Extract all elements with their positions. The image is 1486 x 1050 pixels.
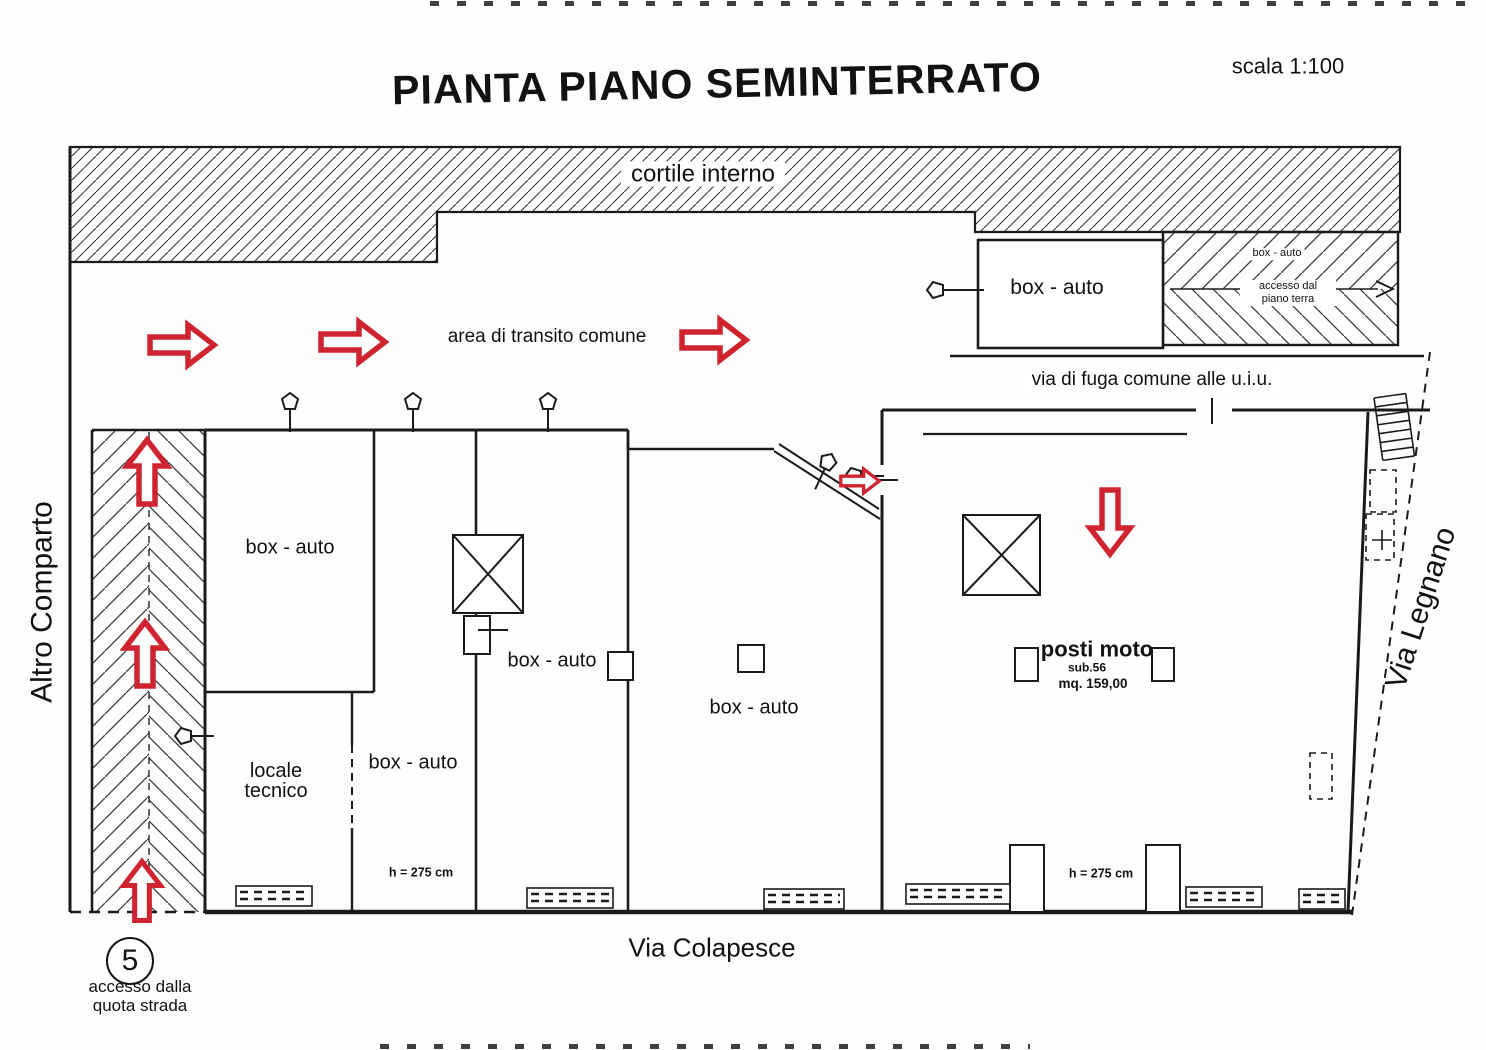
plan-linework: [0, 0, 1486, 1050]
transit-area-label: area di transito comune: [448, 327, 647, 347]
pilaster-pm-left: [1010, 845, 1044, 912]
stairs: [1366, 394, 1414, 560]
posti-moto-area-label: mq. 159,00: [1058, 677, 1127, 691]
street-label-altro-comparto: Altro Comparto: [26, 501, 58, 703]
door-symbols: [175, 282, 966, 744]
cortile-interno-label: cortile interno: [621, 161, 785, 186]
posti-moto-sub-label: sub.56: [1068, 662, 1106, 675]
access-note-line1: accesso dalla: [88, 977, 191, 996]
door-symbol-icon: [282, 393, 298, 432]
pillar-x-right: [963, 515, 1040, 595]
ramp-box-auto-label: box - auto: [1250, 248, 1305, 260]
locale-line1: locale: [250, 760, 302, 782]
ramp-access-label: accesso dal piano terra: [1240, 280, 1336, 306]
access-number: 5: [122, 944, 139, 978]
room-label-box-auto-2: box - auto: [369, 753, 458, 774]
pillar-small-pm-left: [1015, 648, 1038, 681]
pillar-wall-room3: [608, 652, 633, 680]
arrow-right-icon: [150, 325, 214, 365]
room-label-box-auto-1: box - auto: [246, 538, 335, 559]
scan-noise-bottom: [380, 1044, 1030, 1049]
door-symbol-icon: [405, 393, 421, 432]
scale-label: scala 1:100: [1232, 54, 1345, 77]
door-symbol-icon: [808, 451, 839, 493]
room-label-locale-tecnico: locale tecnico: [216, 761, 336, 801]
ramp-access-line2: piano terra: [1262, 293, 1315, 305]
pillar-x-left: [453, 535, 523, 654]
locale-line2: tecnico: [244, 780, 307, 802]
floor-plan-canvas: PIANTA PIANO SEMINTERRATO scala 1:100 co…: [0, 0, 1486, 1050]
height-note-posti-moto: h = 275 cm: [1069, 867, 1133, 880]
access-note-line2: quota strada: [93, 996, 188, 1015]
arrow-down-icon: [1090, 490, 1130, 554]
door-symbol-icon: [540, 393, 556, 432]
door-symbol-icon: [927, 282, 966, 298]
escape-route-label: via di fuga comune alle u.i.u.: [1026, 370, 1279, 390]
ramp-access-line1: accesso dal: [1259, 280, 1317, 292]
room-label-box-auto-3: box - auto: [508, 651, 597, 672]
scan-noise-top: [430, 1, 1480, 6]
room-label-box-auto-4: box - auto: [710, 698, 799, 719]
height-note-room2: h = 275 cm: [389, 866, 453, 879]
arrow-right-icon: [682, 320, 746, 360]
arrow-right-icon: [321, 322, 385, 362]
pillar-small-center: [738, 645, 764, 672]
room-label-box-auto-top-right: box - auto: [1010, 277, 1103, 299]
pilaster-pm-right: [1146, 845, 1180, 912]
dashed-detail-bottom-right: [1310, 753, 1332, 799]
street-label-via-colapesce: Via Colapesce: [628, 934, 795, 961]
posti-moto-label: posti moto: [1041, 637, 1153, 660]
pillar-small-pm-right: [1152, 648, 1174, 681]
access-note: accesso dalla quota strada: [65, 977, 215, 1015]
